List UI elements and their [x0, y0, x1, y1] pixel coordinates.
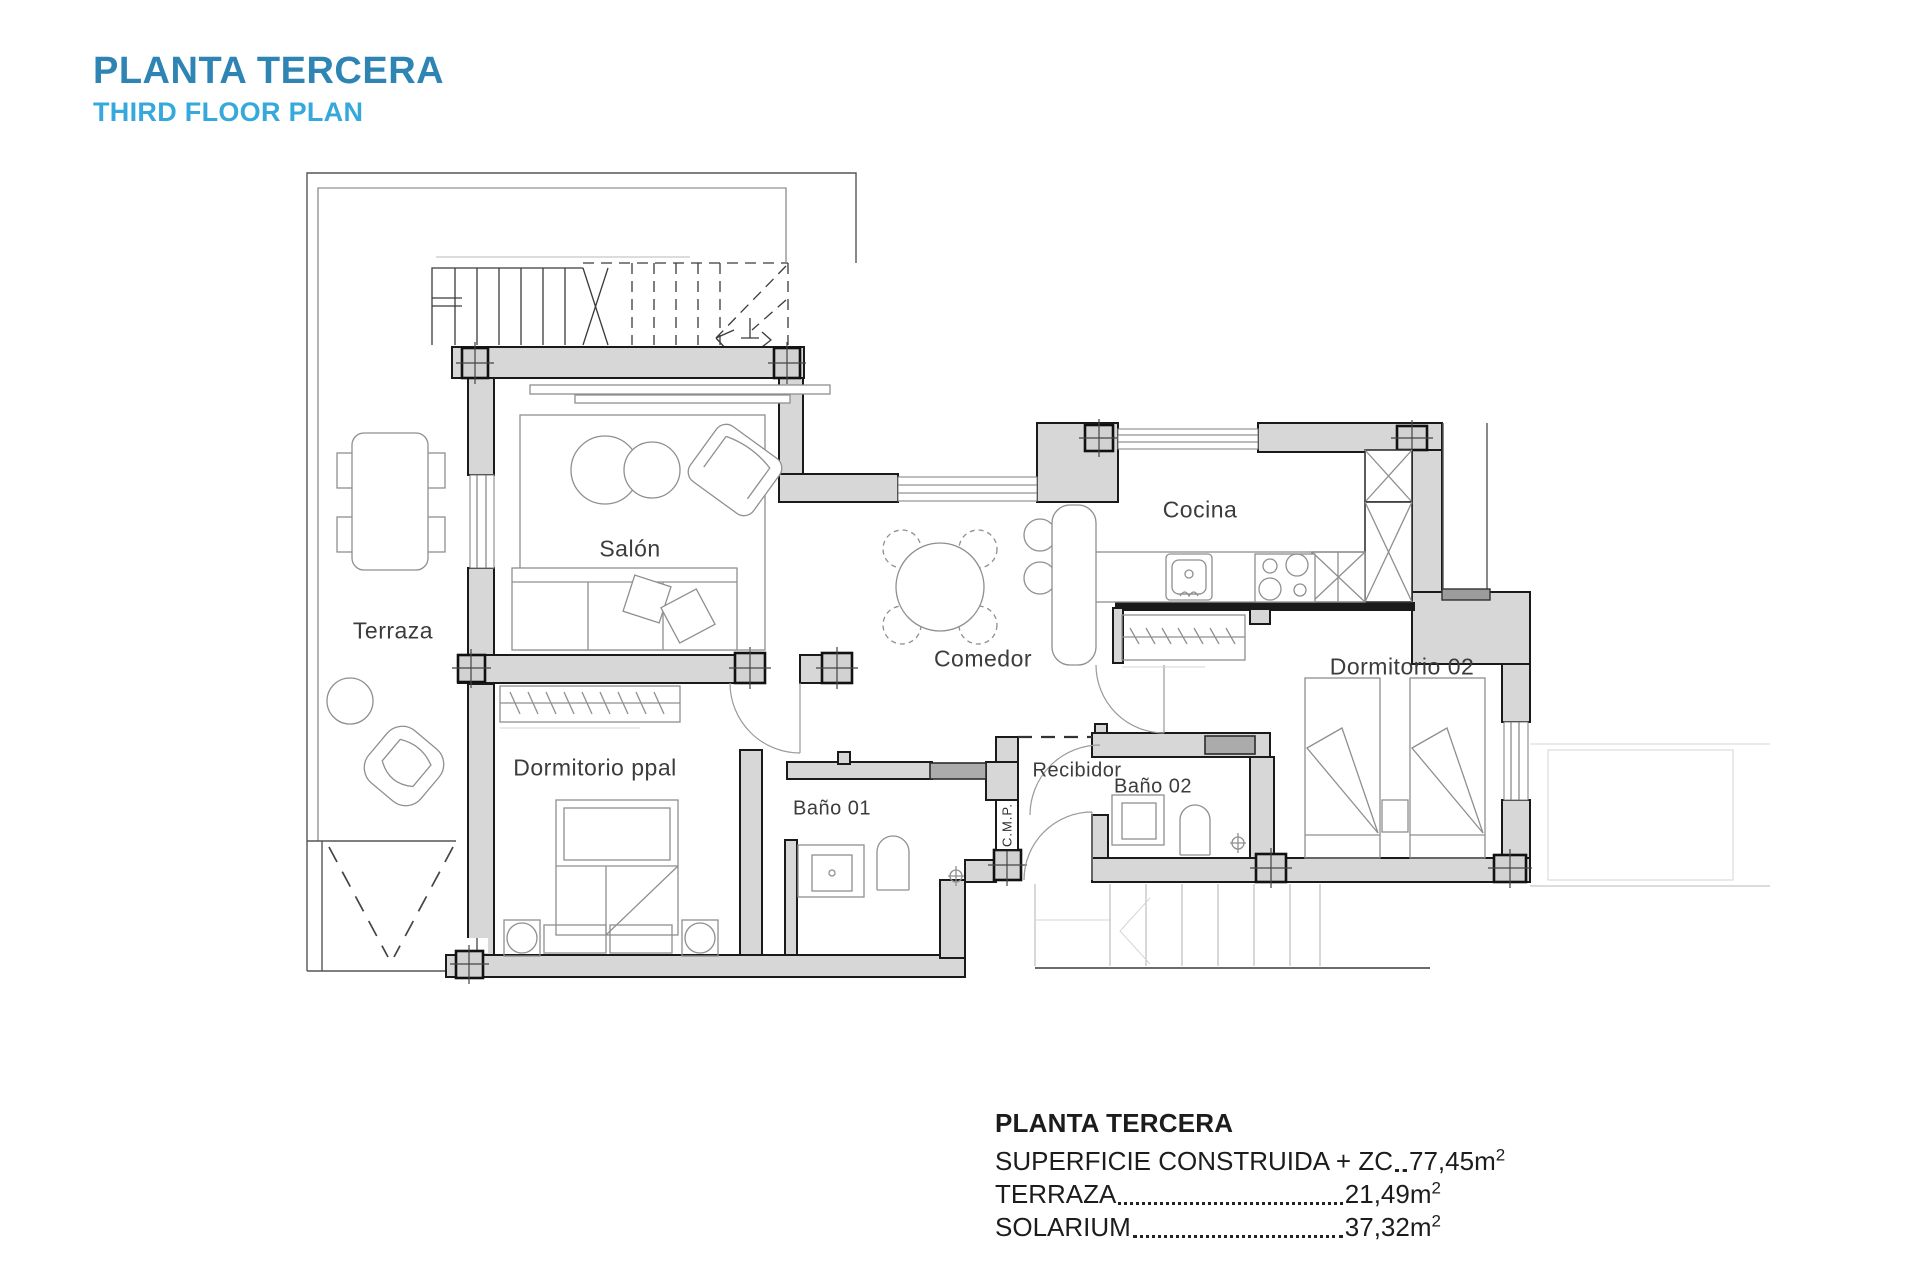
sofa	[512, 568, 737, 650]
comedor-furniture	[883, 530, 997, 644]
dormitorio-ppal-furniture	[500, 686, 718, 956]
room-label-terraza: Terraza	[353, 618, 433, 645]
room-label-dormitorio-ppal: Dormitorio ppal	[513, 755, 676, 782]
kitchen-island	[1024, 505, 1096, 665]
floor-plan: Terraza Salón Cocina Comedor Dormitorio …	[0, 0, 1920, 1280]
toilet-2	[1180, 805, 1210, 855]
awning-dashed-v	[329, 847, 453, 957]
kitchen-wardrobe	[1122, 615, 1245, 667]
legend-label: SUPERFICIE CONSTRUIDA + ZC	[995, 1145, 1393, 1178]
floor-plan-drawing	[0, 0, 1920, 1280]
legend-label: TERRAZA	[995, 1178, 1116, 1211]
twin-bed-2	[1410, 678, 1485, 858]
stove	[1255, 554, 1315, 602]
room-label-bano-02: Baño 02	[1114, 776, 1192, 799]
legend-value: 21,49m2	[1345, 1178, 1441, 1211]
salon-armchair	[683, 420, 786, 521]
terrace-dining-set	[337, 433, 445, 570]
dormitorio02-furniture	[1305, 678, 1485, 858]
room-label-salon: Salón	[599, 536, 660, 563]
bedroom-bench	[504, 920, 718, 956]
room-label-comedor: Comedor	[934, 646, 1032, 673]
washbasin-tap-2	[1230, 833, 1246, 853]
twin-bed-1	[1305, 678, 1380, 858]
legend-row-solarium: SOLARIUM 37,32m2	[995, 1211, 1441, 1244]
tv-sideboard	[530, 385, 830, 394]
legend-title: PLANTA TERCERA	[995, 1108, 1441, 1139]
sink	[1166, 554, 1212, 600]
legend-label: SOLARIUM	[995, 1211, 1131, 1244]
floor-plan-page: PLANTA TERCERA THIRD FLOOR PLAN	[0, 0, 1920, 1280]
vent-shaft	[1365, 450, 1412, 602]
legend-value: 77,45m2	[1409, 1145, 1505, 1178]
area-legend: PLANTA TERCERA SUPERFICIE CONSTRUIDA + Z…	[995, 1108, 1441, 1244]
dormitorio02-window	[1504, 722, 1528, 800]
wardrobe-ppal	[500, 686, 680, 728]
bano02-fixtures	[1112, 795, 1246, 855]
double-bed	[556, 800, 678, 935]
salon-window	[470, 475, 494, 568]
stairs	[432, 257, 788, 350]
room-label-recibidor: Recibidor	[1033, 760, 1122, 783]
legend-row-terraza: TERRAZA 21,49m2	[995, 1178, 1441, 1211]
kitchen-tall-unit	[1312, 552, 1365, 602]
legend-value: 37,32m2	[1345, 1211, 1441, 1244]
comedor-window	[898, 477, 1037, 501]
room-label-cmp: C.M.P.	[1000, 803, 1015, 847]
vent-box-bano02	[1205, 736, 1255, 754]
kitchen-fixtures	[1024, 505, 1365, 667]
dotted-leader	[1395, 1169, 1407, 1172]
shower	[798, 845, 864, 897]
dotted-leader	[1133, 1235, 1343, 1238]
cocina-window	[1118, 429, 1258, 449]
coffee-table-2	[624, 442, 680, 498]
dining-table	[896, 543, 984, 631]
room-label-cocina: Cocina	[1163, 497, 1238, 524]
vent-box-hall	[930, 763, 986, 779]
room-label-dormitorio-02: Dormitorio 02	[1330, 654, 1475, 681]
nightstand	[1382, 800, 1408, 832]
terrace-side-table	[327, 678, 373, 724]
toilet	[877, 836, 909, 890]
dotted-leader	[1118, 1202, 1342, 1205]
legend-row-superficie: SUPERFICIE CONSTRUIDA + ZC 77,45m2	[995, 1145, 1441, 1178]
terrace-armchair	[356, 718, 452, 814]
room-label-bano-01: Baño 01	[793, 798, 871, 821]
